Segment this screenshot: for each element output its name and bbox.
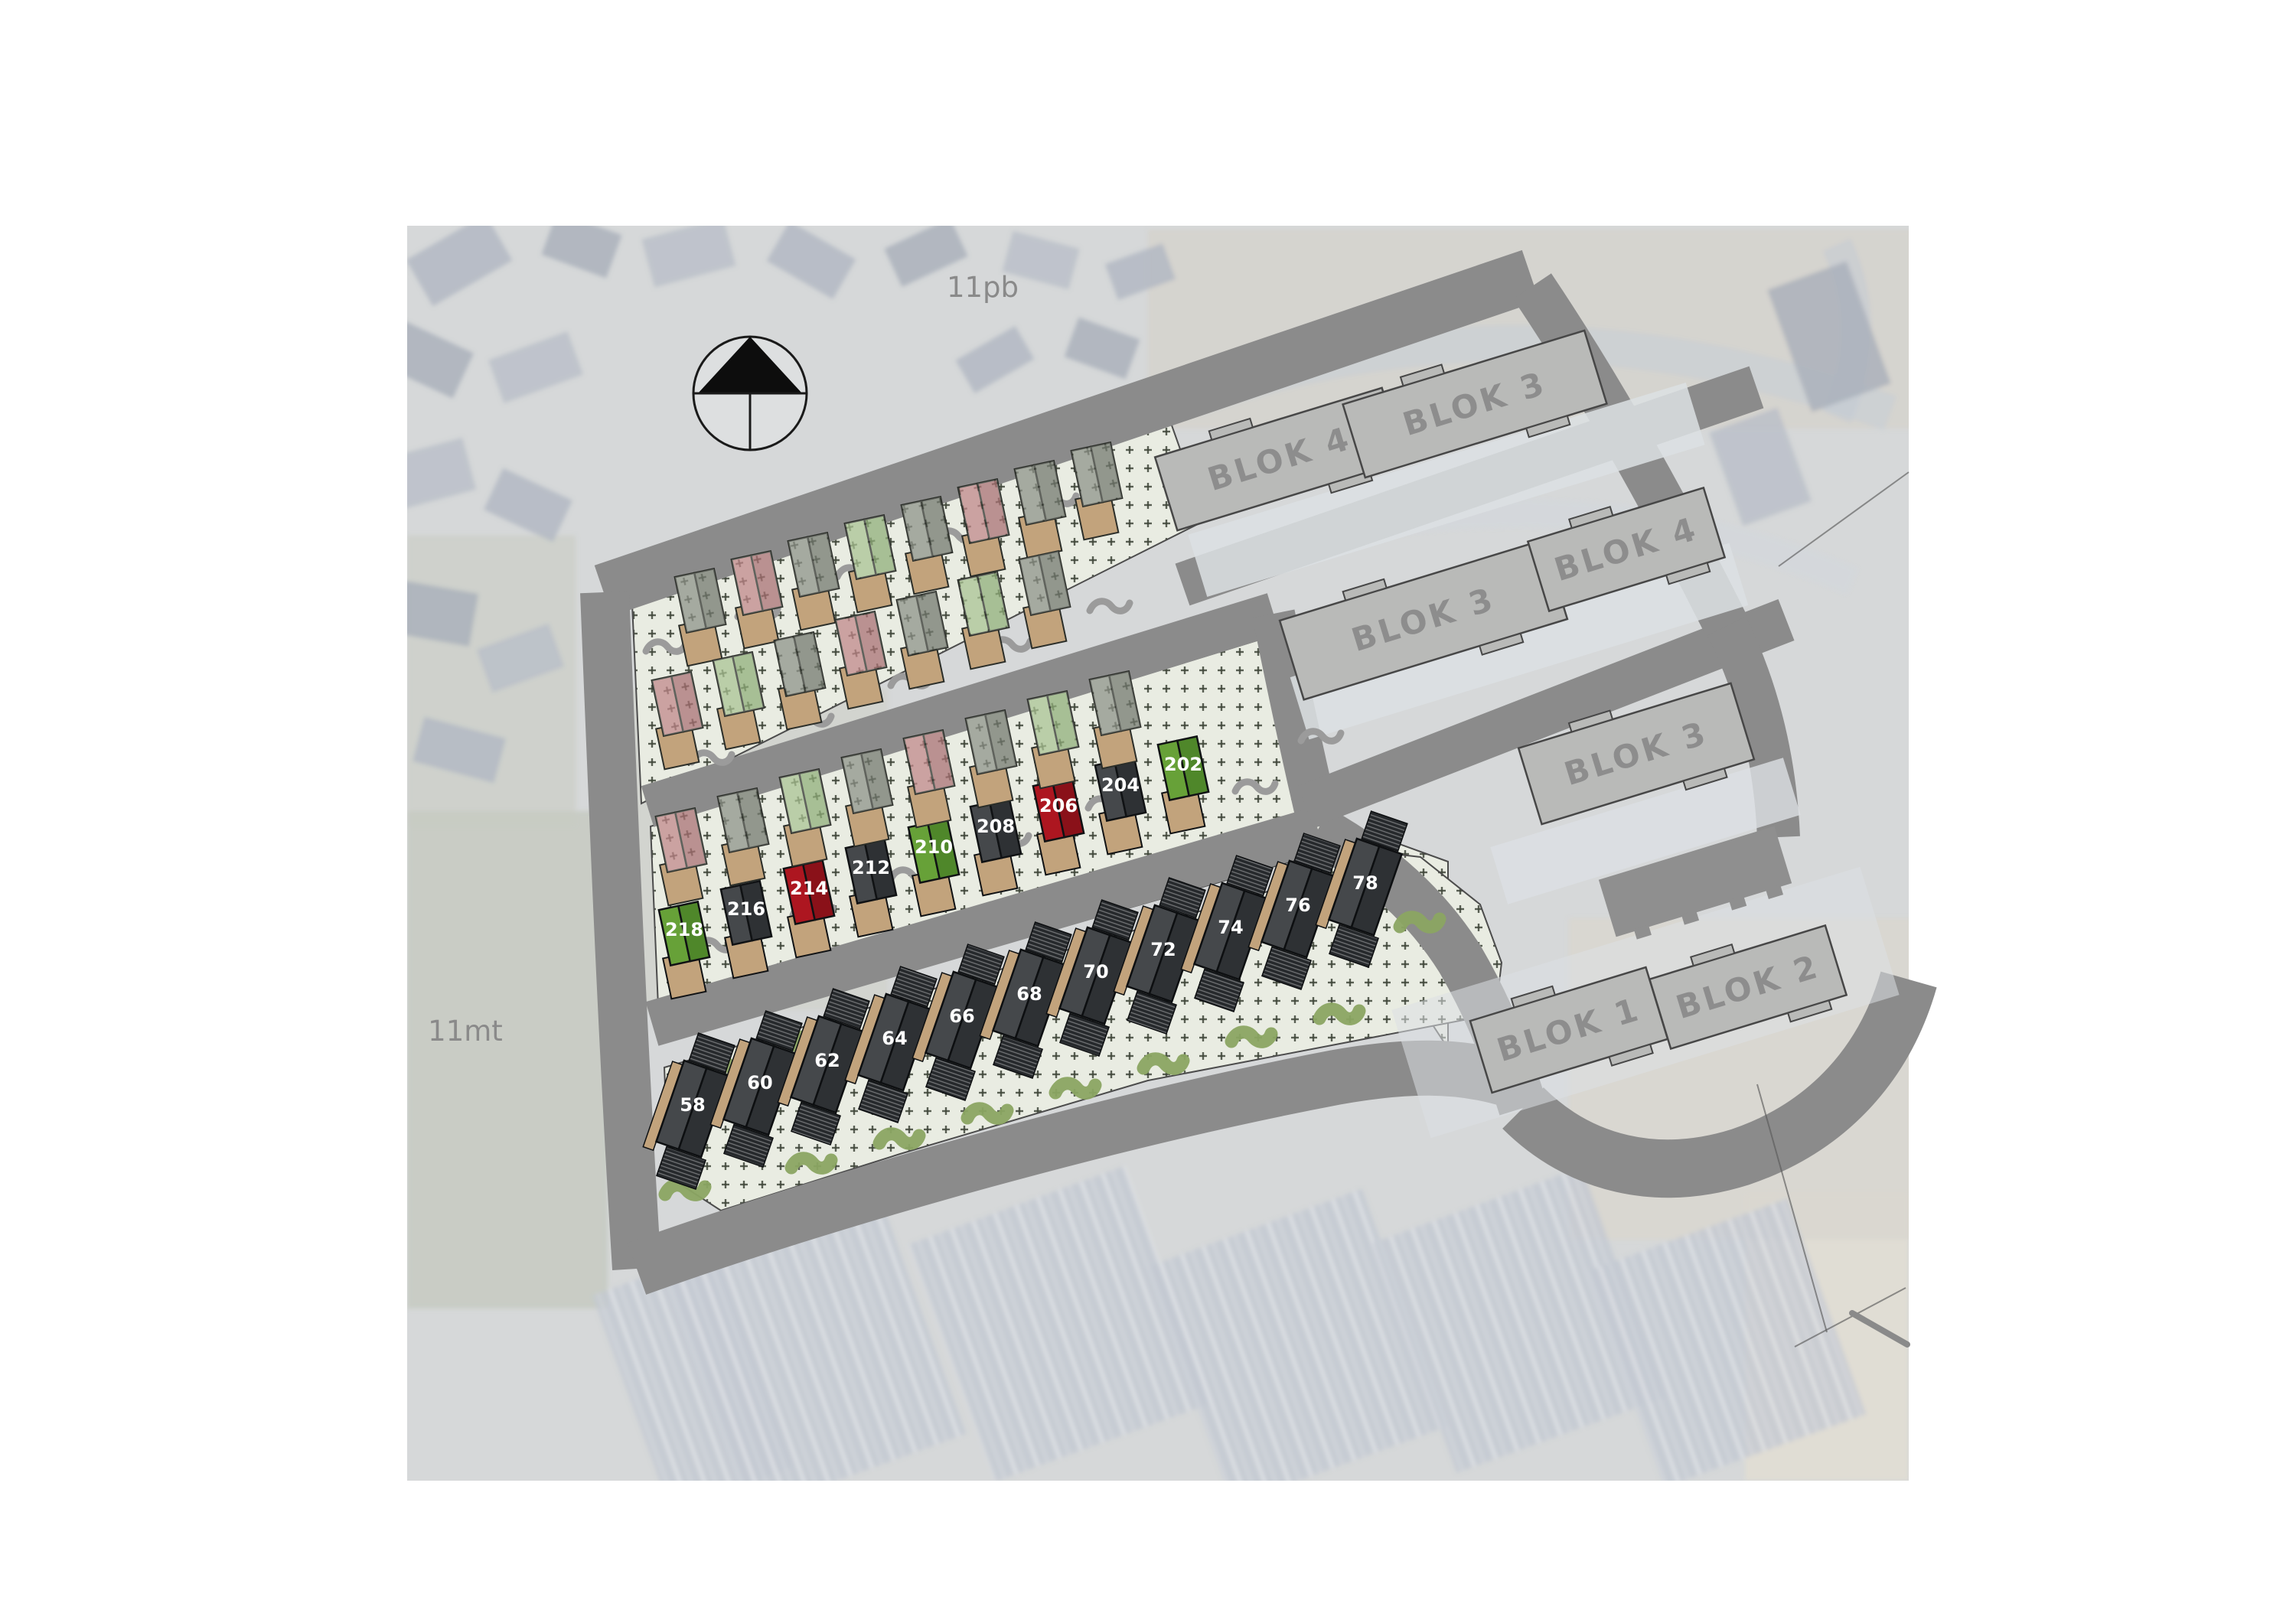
house-number: 76 bbox=[1285, 895, 1310, 916]
shrub-green bbox=[1319, 1009, 1359, 1019]
house-number: 210 bbox=[915, 836, 953, 858]
left-road bbox=[605, 592, 637, 1269]
house-number: 60 bbox=[747, 1072, 772, 1093]
house-number: 62 bbox=[814, 1050, 840, 1071]
shrub-green bbox=[665, 1185, 705, 1195]
house-number: 204 bbox=[1101, 774, 1140, 796]
shrub-green bbox=[1400, 917, 1440, 927]
site-plan-page: 2022042062082102122142162185860626466687… bbox=[0, 0, 2296, 1623]
house-number: 218 bbox=[665, 919, 703, 940]
site-plan-svg: 2022042062082102122142162185860626466687… bbox=[0, 0, 2296, 1623]
house-number: 66 bbox=[949, 1005, 974, 1027]
house-number: 68 bbox=[1016, 983, 1042, 1005]
house-number: 214 bbox=[790, 878, 828, 899]
area-label-11mt: 11mt bbox=[428, 1015, 503, 1048]
house-number: 206 bbox=[1039, 795, 1078, 816]
house-number: 72 bbox=[1150, 939, 1176, 960]
area-label-11pb: 11pb bbox=[947, 271, 1019, 304]
shrub-green bbox=[1231, 1032, 1271, 1042]
shrub-green bbox=[1143, 1059, 1183, 1069]
house-number: 212 bbox=[852, 857, 890, 878]
house-number: 74 bbox=[1218, 917, 1243, 938]
house-number: 58 bbox=[680, 1094, 705, 1116]
house-number: 70 bbox=[1083, 961, 1108, 983]
shrub-green bbox=[879, 1134, 919, 1144]
house-number: 208 bbox=[977, 816, 1015, 837]
shrub-green bbox=[1055, 1084, 1095, 1093]
house-number: 202 bbox=[1164, 754, 1202, 775]
shrub-green bbox=[967, 1109, 1007, 1119]
north-arrow bbox=[693, 337, 807, 450]
shrub-green bbox=[791, 1159, 831, 1168]
house-number: 78 bbox=[1352, 872, 1378, 894]
house-number: 216 bbox=[727, 898, 765, 920]
house-number: 64 bbox=[882, 1028, 907, 1049]
